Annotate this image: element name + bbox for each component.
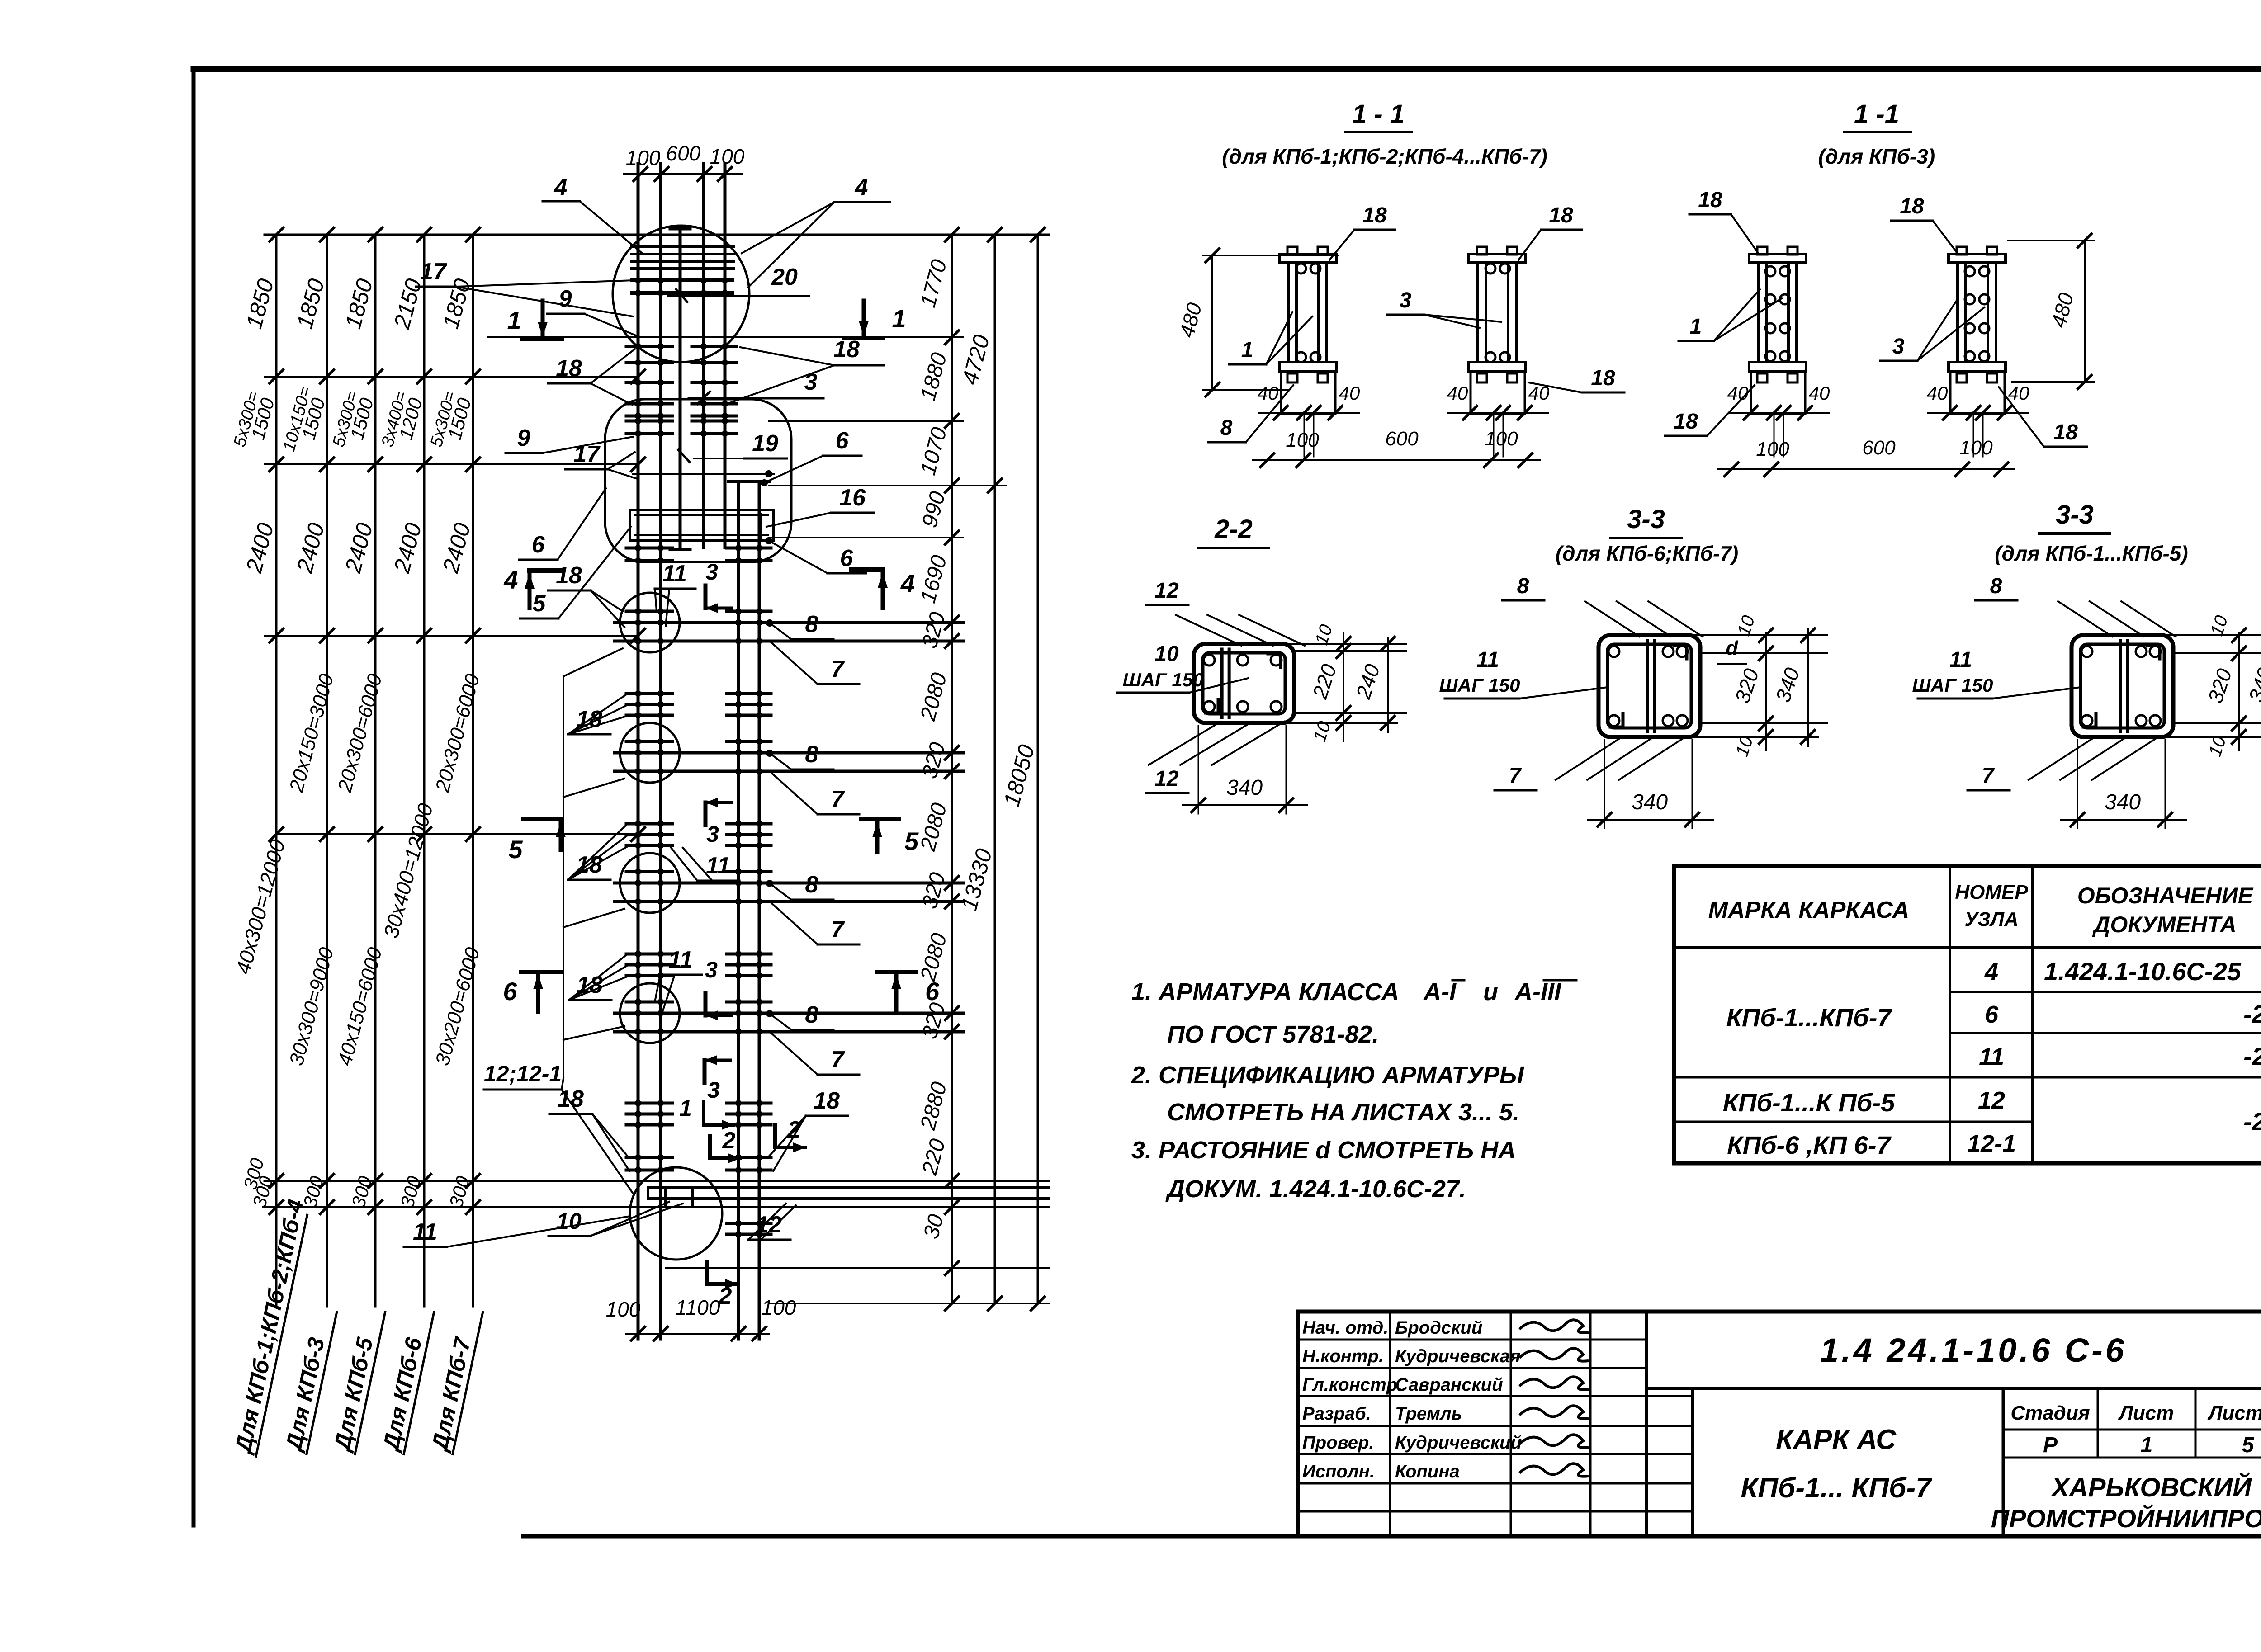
svg-text:5: 5 [508,835,523,864]
svg-text:Нач. отд.: Нач. отд. [1302,1318,1388,1338]
svg-text:d: d [1726,637,1739,659]
svg-text:12;12-1: 12;12-1 [484,1061,562,1086]
svg-text:ХАРЬКОВСКИЙ: ХАРЬКОВСКИЙ [2050,1473,2252,1502]
svg-text:Гл.констр.: Гл.констр. [1302,1375,1402,1395]
svg-text:Копина: Копина [1395,1462,1460,1482]
svg-text:КПб-1... КПб-7: КПб-1... КПб-7 [1741,1473,1932,1504]
svg-text:11: 11 [413,1219,437,1245]
svg-text:3: 3 [706,821,719,847]
svg-text:Лист: Лист [2118,1402,2174,1424]
svg-text:КПб-1...КПб-7: КПб-1...КПб-7 [1726,1003,1892,1032]
svg-text:18: 18 [1900,194,1924,218]
svg-text:18: 18 [1698,188,1722,212]
svg-text:17: 17 [573,441,601,467]
svg-text:3: 3 [705,957,718,982]
svg-text:1.4 24.1-10.6 С-6: 1.4 24.1-10.6 С-6 [1820,1331,2127,1369]
svg-text:1: 1 [1241,338,1253,362]
svg-text:Провер.: Провер. [1302,1433,1374,1453]
svg-text:8: 8 [1990,574,2002,598]
svg-text:19: 19 [752,430,778,457]
svg-text:100: 100 [1756,438,1789,460]
svg-text:7: 7 [1509,764,1522,788]
svg-text:18: 18 [2053,420,2078,444]
svg-text:КПб-1...К Пб-5: КПб-1...К Пб-5 [1723,1088,1895,1117]
svg-text:600: 600 [666,142,701,165]
svg-text:9: 9 [559,286,572,312]
svg-text:100: 100 [762,1296,796,1319]
svg-text:8: 8 [805,872,818,898]
svg-text:7: 7 [831,786,845,812]
svg-text:МАРКА КАРКАСА: МАРКА КАРКАСА [1708,897,1909,923]
svg-text:100: 100 [1959,437,1993,459]
svg-text:8: 8 [805,741,818,768]
svg-text:40: 40 [2008,382,2029,404]
svg-text:6: 6 [836,428,849,454]
svg-text:340: 340 [2105,790,2141,814]
svg-text:600: 600 [1385,428,1419,450]
svg-text:100: 100 [710,145,745,168]
svg-text:18: 18 [1362,203,1387,227]
svg-text:5: 5 [904,827,919,855]
svg-text:11: 11 [668,947,693,973]
svg-text:12: 12 [756,1212,782,1238]
svg-text:600: 600 [1862,437,1896,459]
svg-text:18: 18 [833,336,860,363]
svg-text:СМОТРЕТЬ НА ЛИСТАХ 3... 5.: СМОТРЕТЬ НА ЛИСТАХ 3... 5. [1167,1099,1519,1126]
svg-text:Тремль: Тремль [1395,1404,1462,1424]
svg-text:7: 7 [1982,764,1995,788]
svg-text:-26: -26 [2243,1000,2261,1028]
svg-text:4: 4 [503,566,518,594]
svg-text:7: 7 [831,656,845,682]
svg-text:40: 40 [1339,382,1360,404]
svg-text:ДОКУМЕНТА: ДОКУМЕНТА [2092,912,2236,937]
svg-text:2. СПЕЦИФИКАЦИЮ АРМАТУРЫ: 2. СПЕЦИФИКАЦИЮ АРМАТУРЫ [1131,1062,1524,1089]
svg-text:НОМЕР: НОМЕР [1955,881,2028,903]
svg-text:6: 6 [925,977,940,1005]
svg-text:и: и [1483,978,1498,1005]
svg-text:2: 2 [787,1117,801,1143]
svg-text:1: 1 [1690,315,1702,339]
svg-text:2-2: 2-2 [1214,514,1253,544]
svg-text:100: 100 [1286,429,1319,451]
svg-text:1: 1 [679,1095,692,1121]
svg-text:(для КПб-1;КПб-2;КПб-4...КПб-7: (для КПб-1;КПб-2;КПб-4...КПб-7) [1222,145,1547,168]
svg-text:-27: -27 [2243,1107,2261,1136]
svg-text:6: 6 [503,977,517,1005]
svg-text:12: 12 [1154,767,1179,791]
svg-text:Кудричевский: Кудричевский [1395,1433,1522,1453]
svg-text:Бродский: Бродский [1395,1318,1482,1338]
svg-text:11: 11 [1476,648,1499,672]
svg-text:11: 11 [1949,648,1972,672]
svg-text:20: 20 [771,264,798,290]
svg-text:18: 18 [1674,410,1698,434]
svg-text:18: 18 [556,355,582,382]
svg-text:1 -1: 1 -1 [1854,99,1899,129]
svg-text:(для КПб-6;КПб-7): (для КПб-6;КПб-7) [1556,542,1738,565]
svg-text:2: 2 [722,1128,736,1154]
svg-text:4: 4 [554,175,568,201]
svg-text:8: 8 [1220,416,1233,440]
svg-text:(для КПб-3): (для КПб-3) [1818,145,1935,168]
svg-text:ШАГ 150: ШАГ 150 [1912,675,1993,696]
svg-text:3-3: 3-3 [1627,505,1665,534]
svg-text:Кудричевская: Кудричевская [1395,1346,1520,1366]
svg-text:100: 100 [1485,428,1518,450]
svg-text:ОБОЗНАЧЕНИЕ: ОБОЗНАЧЕНИЕ [2077,883,2254,908]
svg-text:6: 6 [532,532,545,558]
svg-text:КПб-6 ,КП 6-7: КПб-6 ,КП 6-7 [1727,1131,1892,1159]
svg-text:Разраб.: Разраб. [1302,1404,1371,1424]
svg-text:ШАГ 150: ШАГ 150 [1123,669,1204,690]
svg-text:10: 10 [1154,642,1179,666]
svg-text:ДОКУМ. 1.424.1-10.6С-27.: ДОКУМ. 1.424.1-10.6С-27. [1165,1175,1466,1203]
svg-text:40: 40 [1727,382,1749,404]
svg-text:16: 16 [839,485,866,511]
svg-text:7: 7 [831,1047,845,1073]
svg-text:3. РАСТОЯНИЕ d СМОТРЕТЬ НА: 3. РАСТОЯНИЕ d СМОТРЕТЬ НА [1131,1137,1516,1164]
svg-text:3: 3 [1892,335,1905,359]
svg-text:100: 100 [626,146,661,170]
svg-text:100: 100 [606,1298,641,1321]
svg-text:5: 5 [2242,1433,2255,1457]
svg-text:1.424.1-10.6С-25: 1.424.1-10.6С-25 [2044,957,2242,986]
svg-text:Стадия: Стадия [2010,1402,2090,1424]
svg-text:8: 8 [805,611,818,637]
svg-text:12-1: 12-1 [1967,1130,2016,1157]
svg-text:1: 1 [892,304,906,333]
svg-text:18: 18 [558,1086,584,1112]
svg-text:ПРОМСТРОЙНИИПРОЕКТ: ПРОМСТРОЙНИИПРОЕКТ [1991,1504,2261,1533]
svg-text:40: 40 [1447,382,1468,404]
svg-text:4: 4 [1984,958,1998,986]
svg-text:18: 18 [1591,366,1615,390]
svg-text:3-3: 3-3 [2056,500,2094,529]
svg-text:340: 340 [1632,790,1668,814]
svg-text:3: 3 [804,369,818,395]
svg-text:11: 11 [706,853,730,879]
svg-text:18: 18 [556,562,582,589]
svg-text:1: 1 [507,306,521,335]
svg-text:6: 6 [1985,1001,1999,1028]
svg-text:ПО ГОСТ 5781-82.: ПО ГОСТ 5781-82. [1167,1021,1379,1048]
svg-text:Р: Р [2043,1433,2058,1457]
svg-text:8: 8 [805,1002,818,1028]
svg-text:340: 340 [1226,776,1263,800]
svg-text:12: 12 [1154,579,1179,603]
svg-text:Исполн.: Исполн. [1302,1462,1375,1482]
svg-text:3: 3 [1400,288,1412,312]
svg-text:11: 11 [1979,1043,2004,1071]
svg-text:1 - 1: 1 - 1 [1352,99,1405,129]
svg-text:8: 8 [1517,574,1529,598]
svg-text:(для КПб-1...КПб-5): (для КПб-1...КПб-5) [1995,542,2188,565]
svg-text:Н.контр.: Н.контр. [1302,1346,1384,1366]
svg-text:5: 5 [533,590,546,617]
svg-text:ШАГ 150: ШАГ 150 [1439,675,1520,696]
svg-text:1100: 1100 [676,1296,720,1319]
svg-text:-25: -25 [2243,1042,2261,1071]
svg-text:11: 11 [662,561,687,587]
svg-text:УЗЛА: УЗЛА [1964,908,2019,930]
svg-text:18: 18 [814,1088,840,1114]
svg-text:7: 7 [831,916,845,943]
svg-text:17: 17 [420,259,447,285]
svg-text:1: 1 [2141,1433,2153,1457]
svg-text:КАРК АС: КАРК АС [1776,1424,1897,1455]
svg-text:А-III: А-III [1514,978,1561,1005]
svg-text:Савранский: Савранский [1395,1375,1503,1395]
svg-text:4: 4 [855,175,868,201]
svg-text:18: 18 [1549,203,1573,227]
svg-text:12: 12 [1978,1087,2005,1114]
svg-text:1. АРМАТУРА КЛАССА: 1. АРМАТУРА КЛАССА [1131,978,1399,1005]
svg-text:3: 3 [707,1077,720,1103]
svg-text:А-I: А-I [1423,978,1457,1005]
svg-text:Листов: Листов [2207,1402,2261,1424]
svg-text:40: 40 [1927,382,1948,404]
svg-text:10: 10 [556,1208,582,1234]
svg-text:4: 4 [900,569,915,598]
svg-text:3: 3 [705,559,718,585]
svg-text:40: 40 [1809,382,1830,404]
svg-text:40: 40 [1258,382,1279,404]
svg-text:9: 9 [517,425,530,451]
